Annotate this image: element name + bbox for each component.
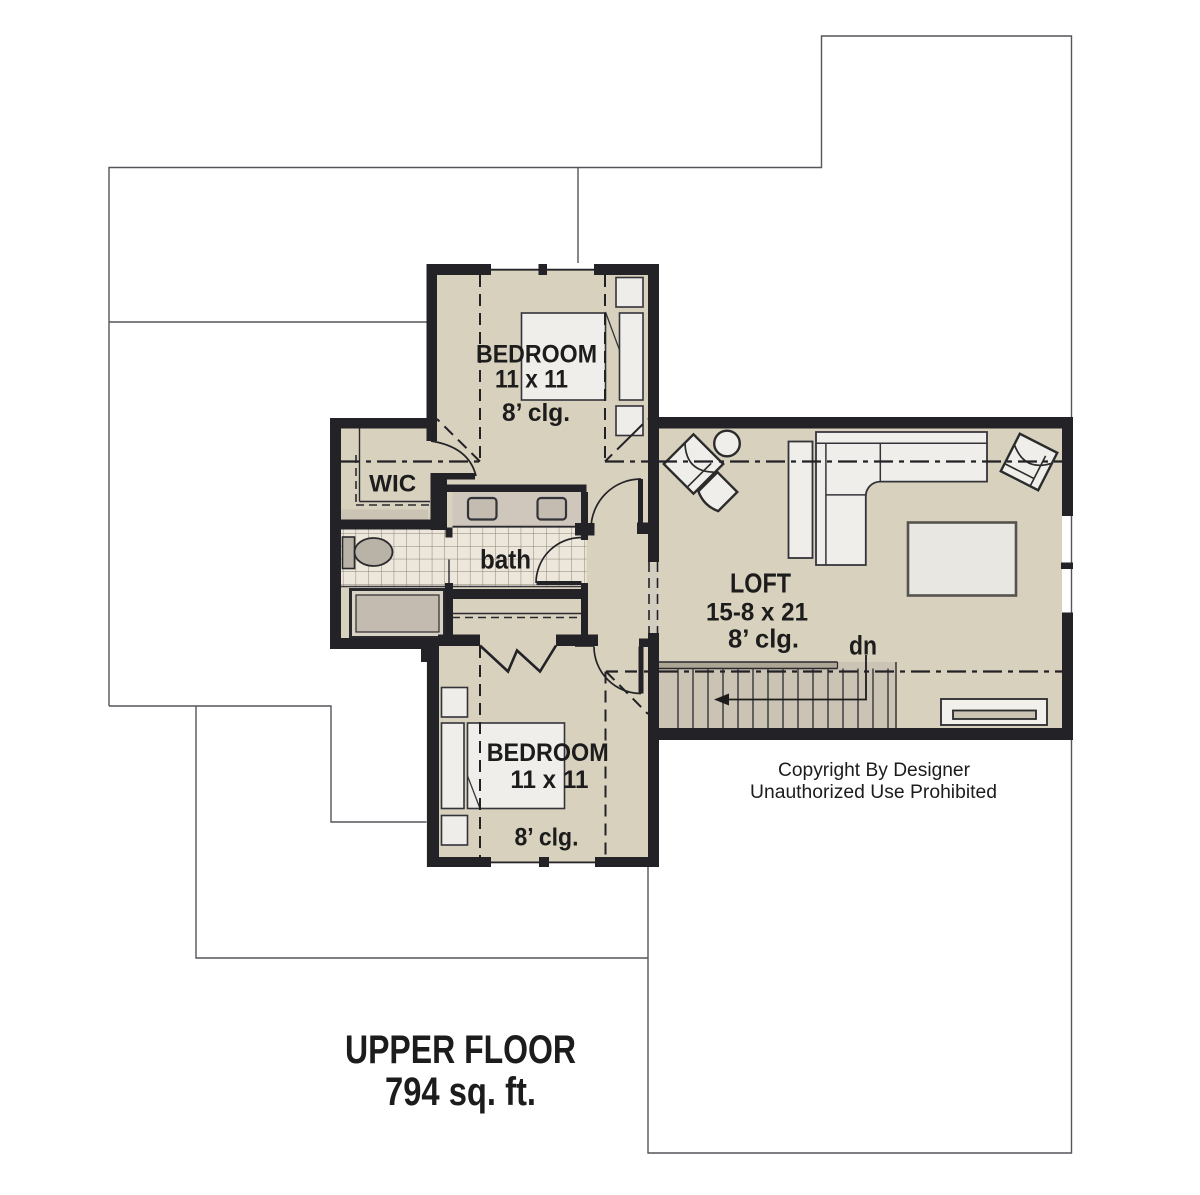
- svg-text:8’ clg.: 8’ clg.: [502, 399, 570, 427]
- svg-text:Copyright By Designer: Copyright By Designer: [778, 760, 971, 781]
- svg-text:BEDROOM: BEDROOM: [476, 341, 597, 369]
- svg-text:11 x 11: 11 x 11: [495, 366, 568, 394]
- svg-text:WIC: WIC: [369, 471, 416, 498]
- svg-text:dn: dn: [849, 631, 877, 661]
- svg-text:794 sq. ft.: 794 sq. ft.: [385, 1070, 536, 1114]
- svg-text:11 x 11: 11 x 11: [510, 766, 588, 794]
- svg-text:8’ clg.: 8’ clg.: [728, 624, 799, 654]
- svg-text:8’ clg.: 8’ clg.: [515, 824, 579, 852]
- svg-text:UPPER FLOOR: UPPER FLOOR: [345, 1028, 576, 1072]
- svg-text:15-8 x 21: 15-8 x 21: [706, 599, 808, 627]
- svg-text:bath: bath: [480, 545, 531, 575]
- svg-text:BEDROOM: BEDROOM: [487, 739, 609, 767]
- svg-text:Unauthorized Use Prohibited: Unauthorized Use Prohibited: [750, 782, 997, 803]
- svg-text:LOFT: LOFT: [730, 568, 791, 599]
